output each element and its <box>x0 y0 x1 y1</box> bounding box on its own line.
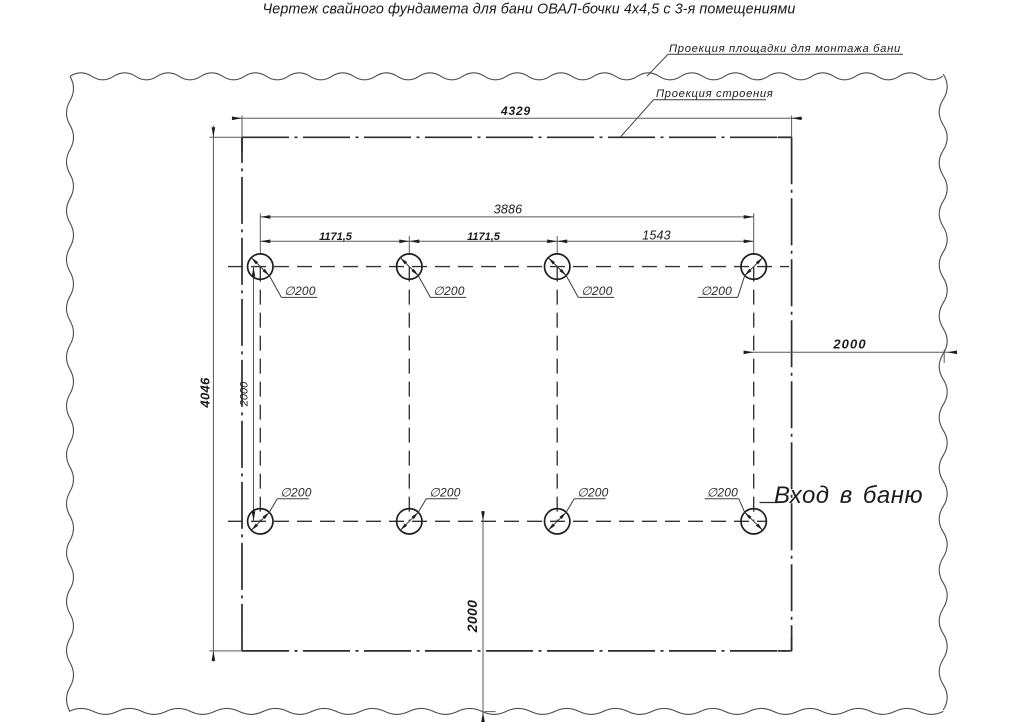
svg-text:∅200: ∅200 <box>707 486 738 500</box>
svg-text:Проекция площадки для монта: Проекция площадки для монтажа бани <box>669 43 901 55</box>
svg-text:4329: 4329 <box>500 104 531 118</box>
svg-text:∅200: ∅200 <box>433 284 464 298</box>
svg-text:∅200: ∅200 <box>701 284 732 298</box>
svg-text:∅200: ∅200 <box>577 486 608 500</box>
svg-text:1171,5: 1171,5 <box>467 231 501 243</box>
svg-text:∅200: ∅200 <box>429 486 460 500</box>
svg-text:3886: 3886 <box>494 202 523 216</box>
svg-text:Проекция строения: Проекция строения <box>656 88 773 100</box>
svg-text:2000: 2000 <box>238 381 250 407</box>
svg-text:∅200: ∅200 <box>581 284 612 298</box>
svg-text:∅200: ∅200 <box>280 486 311 500</box>
svg-text:Чертеж свайного фундамета для: Чертеж свайного фундамета для бани ОВАЛ-… <box>263 2 796 18</box>
svg-text:2000: 2000 <box>832 337 866 352</box>
svg-text:4046: 4046 <box>198 377 213 409</box>
svg-text:Вход в баню: Вход в баню <box>774 482 923 509</box>
svg-text:1171,5: 1171,5 <box>319 231 353 243</box>
svg-text:∅200: ∅200 <box>284 284 315 298</box>
svg-text:1543: 1543 <box>642 228 671 242</box>
svg-text:2000: 2000 <box>464 600 480 633</box>
